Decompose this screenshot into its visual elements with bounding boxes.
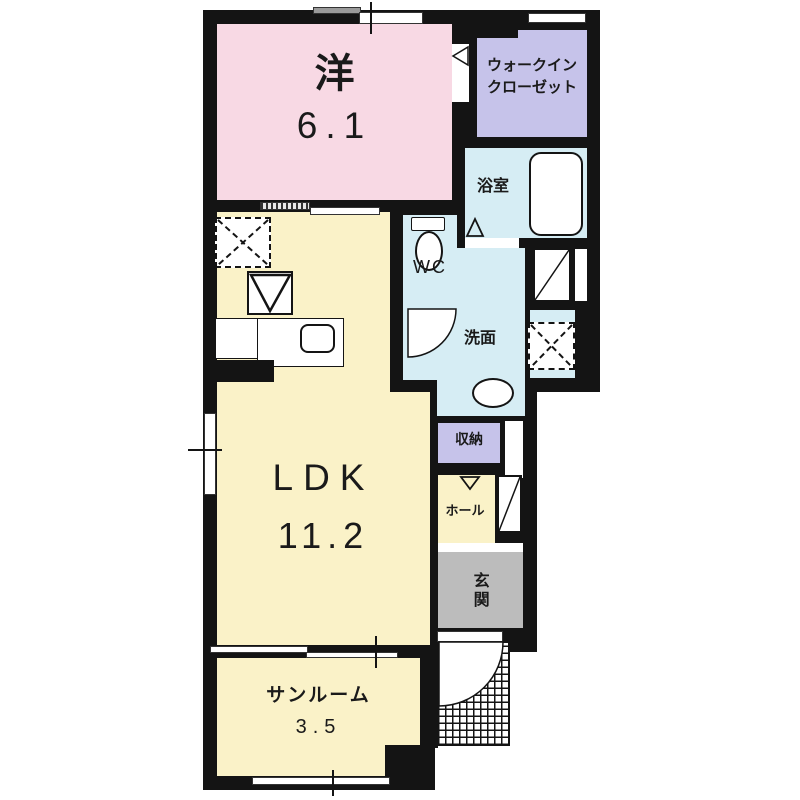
utility-cabinet-icon <box>533 248 571 302</box>
western-window-outer-slab <box>313 7 361 14</box>
wall-wic-notch <box>470 20 518 38</box>
sunroom-sliding-door-panel2 <box>306 652 398 658</box>
western-window-icon <box>359 12 423 24</box>
kitchen-range-icon <box>247 271 293 315</box>
western-sliding-door-panel1 <box>260 202 310 210</box>
sunroom-area: 3.5 <box>217 716 420 738</box>
kitchen-partition-wall <box>208 360 274 382</box>
wall-sunroom-notch <box>385 745 420 776</box>
entrance-step <box>438 543 523 552</box>
shoe-cabinet-icon <box>497 475 522 533</box>
bathtub-icon <box>529 152 583 236</box>
wic-door-opening <box>452 44 469 102</box>
entrance-door-leaf <box>437 631 503 642</box>
sunroom-sliding-door-panel1 <box>210 646 308 653</box>
entrance-label: 玄関 <box>470 560 488 622</box>
hall-label: ホール <box>434 504 496 518</box>
wc-label: WC <box>403 258 457 278</box>
washbasin-icon <box>472 378 514 408</box>
bathroom-label: 浴室 <box>463 178 523 196</box>
porch-icon <box>437 642 510 746</box>
wic-label-line1: ウォークイン <box>477 58 587 75</box>
washing-machine-space-icon <box>528 322 575 370</box>
western-room-label: 洋 <box>217 52 452 96</box>
ldk-area: 11.2 <box>217 516 430 556</box>
kitchen-sink-icon <box>300 324 335 353</box>
room-washroom-main <box>457 248 525 380</box>
washroom-label: 洗面 <box>428 330 532 348</box>
storage-label: 収納 <box>438 432 500 447</box>
toilet-tank-icon <box>411 217 445 231</box>
kitchen-counter-left <box>215 318 258 359</box>
wic-label-line2: クローゼット <box>477 80 587 97</box>
bathroom-threshold <box>465 238 519 248</box>
storage-side-window <box>505 421 523 478</box>
utility-cabinet-narrow <box>574 248 588 302</box>
sunroom-label: サンルーム <box>217 686 420 707</box>
western-room-area: 6.1 <box>217 106 452 147</box>
refrigerator-space-icon <box>215 217 271 268</box>
ldk-window-icon <box>204 413 216 495</box>
western-sliding-door-panel2 <box>310 207 380 215</box>
wic-window-icon <box>528 13 586 23</box>
sunroom-window-icon <box>252 777 390 785</box>
ldk-label: LDK <box>217 458 430 499</box>
floor-plan: 洋 6.1 ウォークイン クローゼット 浴室 WC 洗面 収納 ホール 玄関 L… <box>0 0 800 800</box>
